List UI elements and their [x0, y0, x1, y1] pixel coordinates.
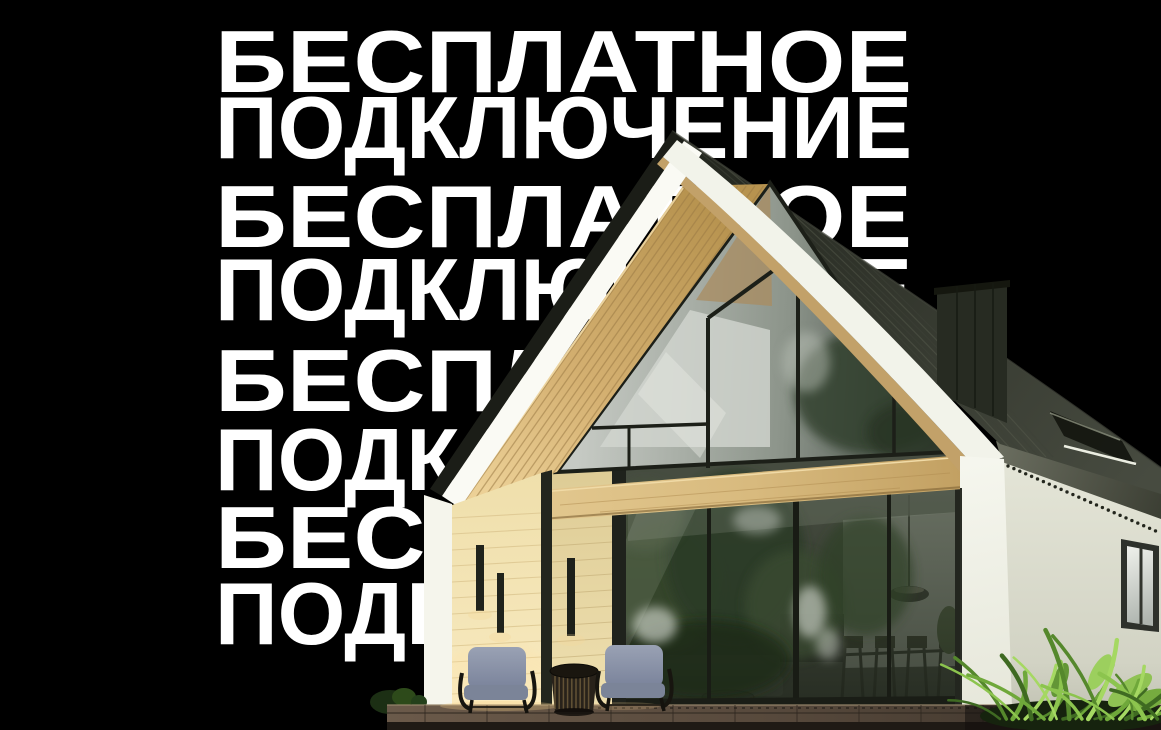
vent-dot [1006, 464, 1009, 467]
table-shadow [554, 708, 594, 716]
vent-dot [1130, 519, 1133, 522]
vent-dot [1101, 506, 1104, 509]
vent-dot [1083, 498, 1086, 501]
wall-sconce [567, 558, 575, 636]
headline-row: ПОДКЛЮЧЕНИЕ [215, 78, 912, 177]
sky-patch [816, 628, 840, 660]
table-top [550, 664, 598, 678]
vent-dot [1030, 475, 1033, 478]
vent-dot [1024, 472, 1027, 475]
sky-patch [733, 506, 781, 534]
sconce-glow [557, 634, 585, 646]
vent-dot [1065, 490, 1068, 493]
vent-dot [1113, 511, 1116, 514]
sky-patch [782, 332, 830, 392]
vent-dot [1018, 469, 1021, 472]
vent-dot [1142, 524, 1145, 527]
tree-reflection [817, 515, 913, 635]
hero-banner: БЕСПЛАТНОЕ ПОДКЛЮЧЕНИЕ БЕСПЛАТНОЕ ПОДКЛЮ… [0, 0, 1161, 730]
vent-dot [1107, 508, 1110, 511]
wall-sconce [476, 545, 484, 611]
vent-dot [1077, 495, 1080, 498]
vent-dot [1136, 521, 1139, 524]
vent-dot [1148, 527, 1151, 530]
vent-dot [1095, 503, 1098, 506]
vent-dot [1054, 485, 1057, 488]
vent-dot [1071, 493, 1074, 496]
vent-dot [1089, 501, 1092, 504]
side-table [550, 664, 598, 716]
vent-dot [1048, 482, 1051, 485]
table-body [551, 673, 597, 712]
corner-trim [424, 495, 452, 710]
vent-dot [1059, 488, 1062, 491]
vent-dot [1042, 480, 1045, 483]
sconce-glow [468, 610, 492, 620]
vent-dot [1036, 477, 1039, 480]
sconce-glow [489, 632, 511, 642]
vent-dot [1118, 514, 1121, 517]
vent-dot [1124, 516, 1127, 519]
vent-dot [1012, 467, 1015, 470]
wall-sconce [497, 573, 504, 633]
vent-dot [1154, 529, 1157, 532]
